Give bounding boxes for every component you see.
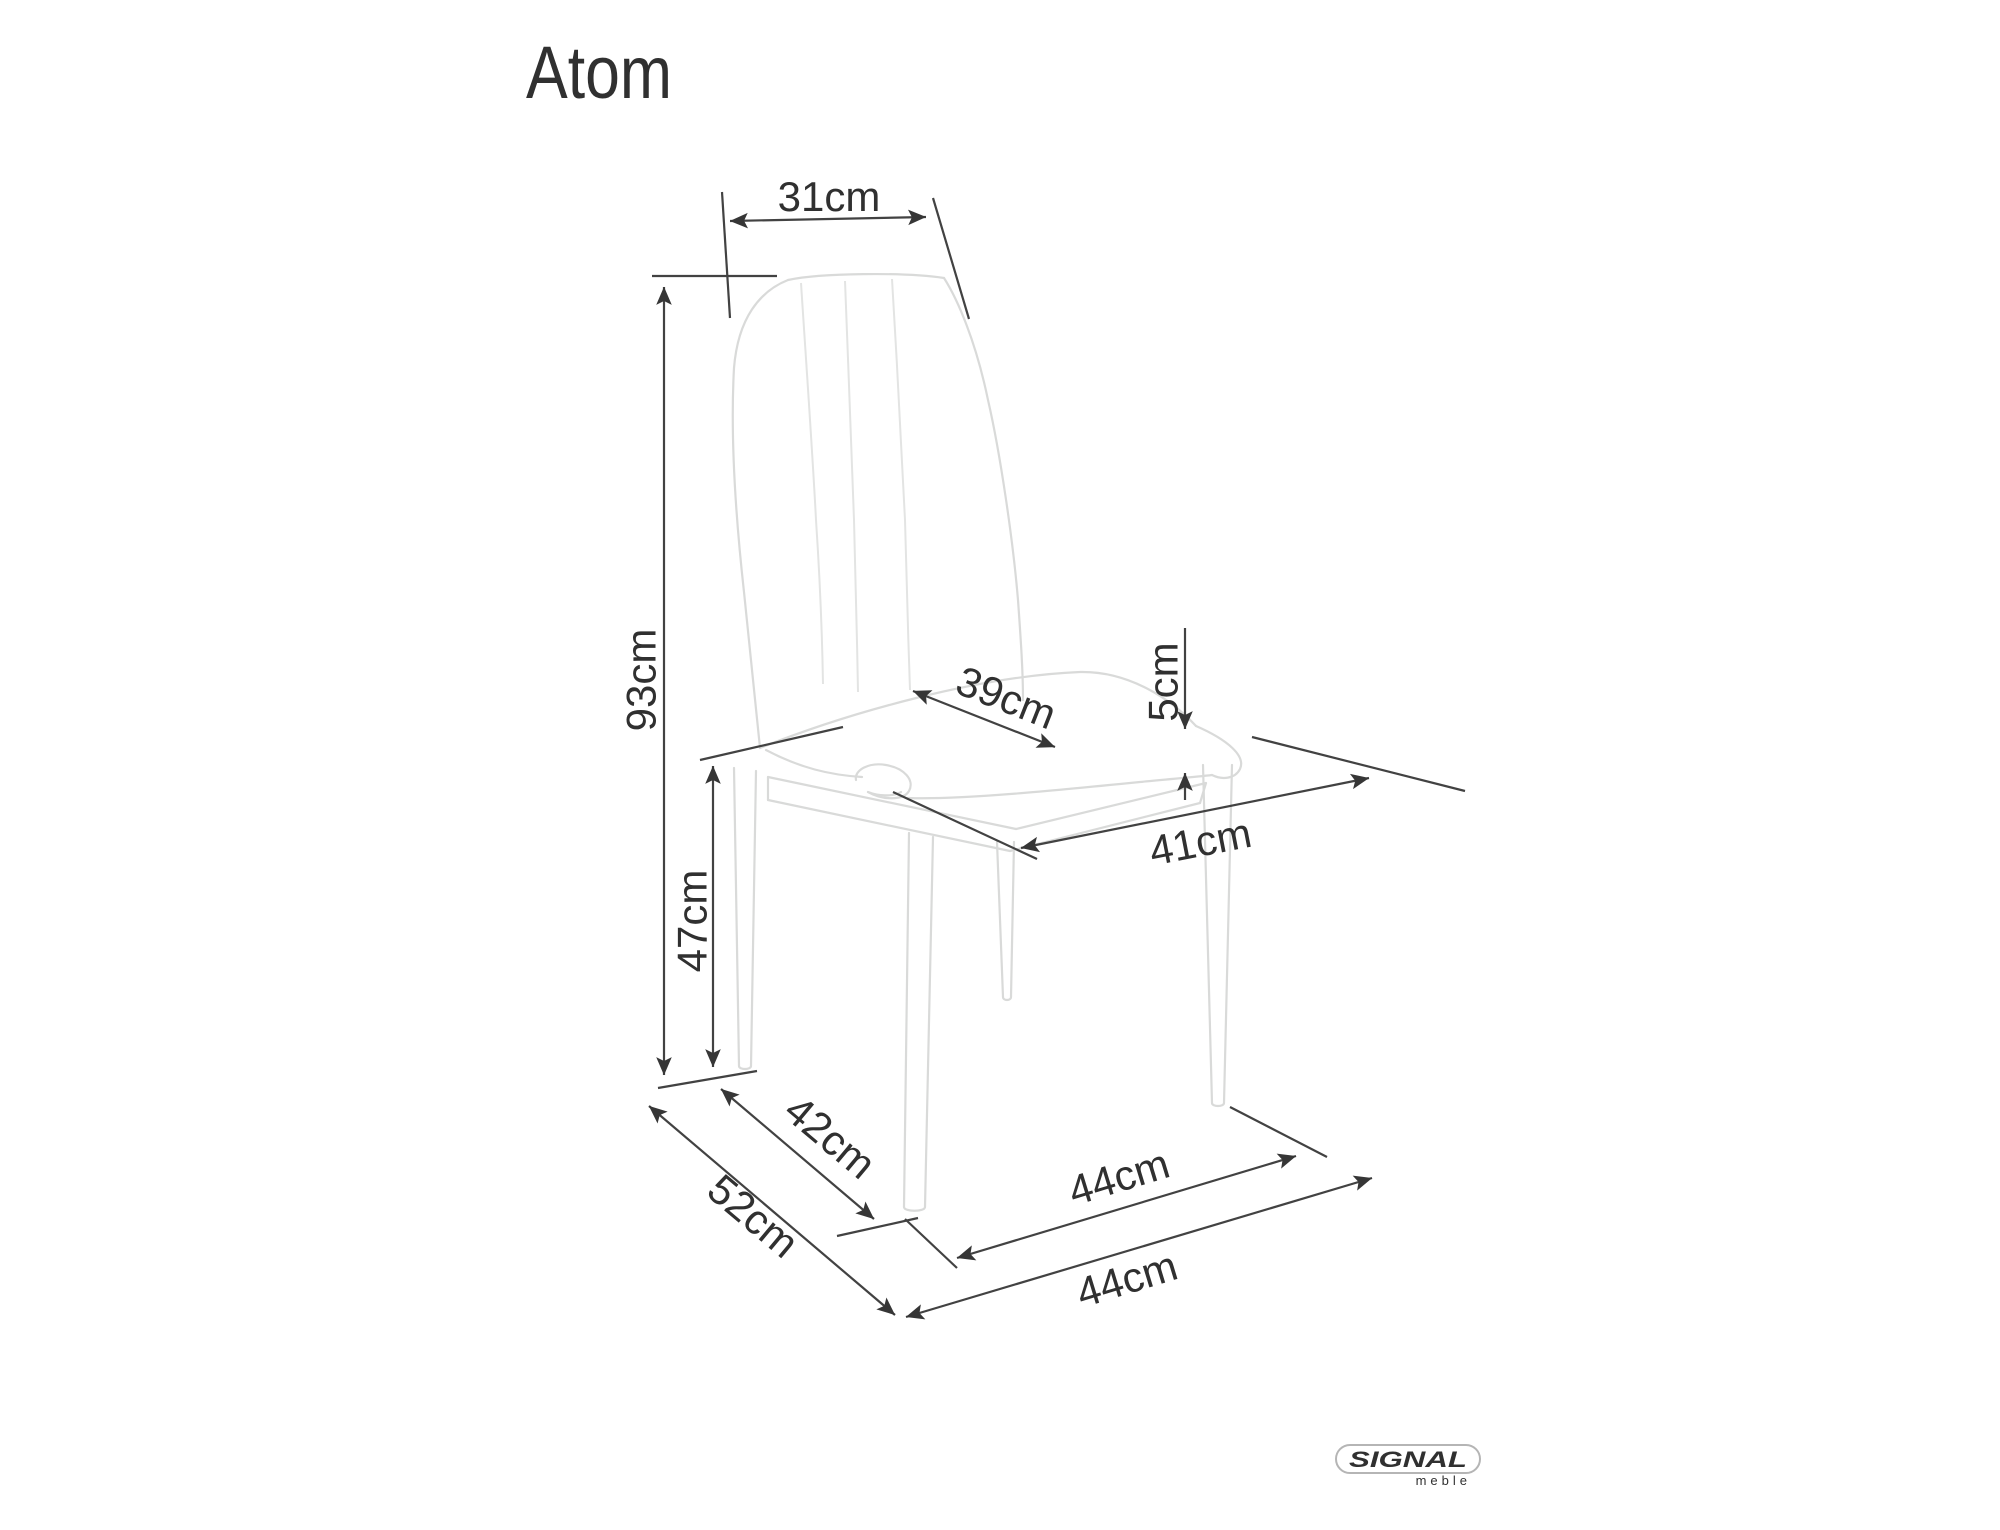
svg-text:93cm: 93cm bbox=[618, 629, 665, 732]
svg-text:5cm: 5cm bbox=[1140, 642, 1187, 721]
svg-text:SIGNAL: SIGNAL bbox=[1349, 1447, 1467, 1472]
svg-text:47cm: 47cm bbox=[669, 870, 716, 973]
svg-text:meble: meble bbox=[1416, 1473, 1471, 1488]
svg-text:Atom: Atom bbox=[526, 31, 672, 114]
svg-text:31cm: 31cm bbox=[778, 173, 881, 220]
